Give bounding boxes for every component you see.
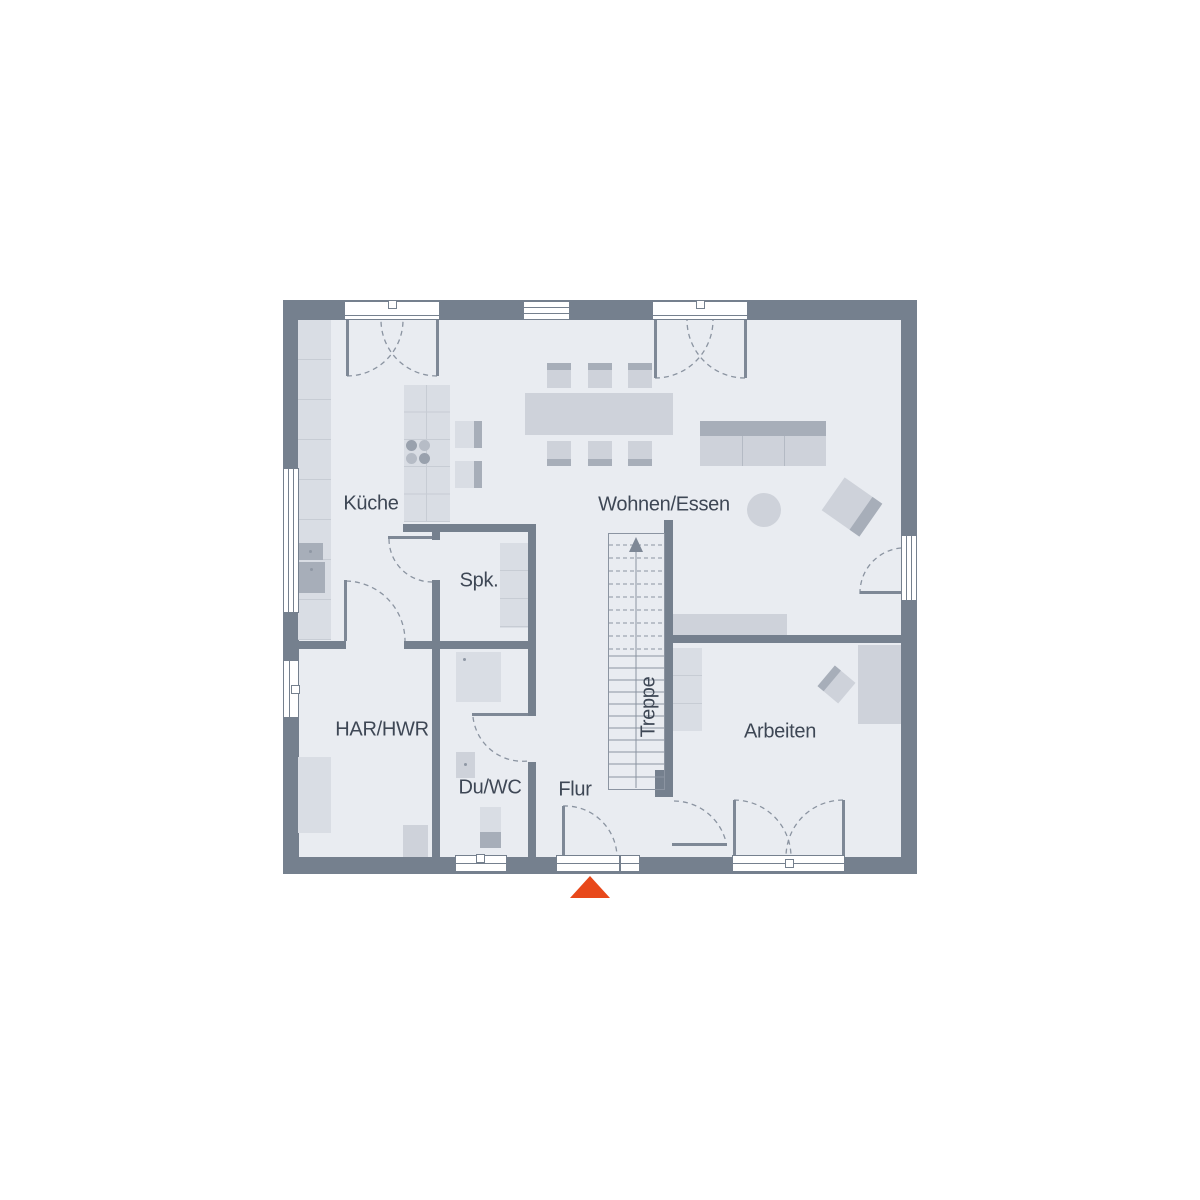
- door-leaf: [860, 591, 902, 594]
- island-sink: [474, 461, 482, 488]
- room-label-du-wc: Du/WC: [459, 777, 522, 800]
- wall-stairs-foot: [655, 770, 673, 797]
- dining-chair: [547, 363, 571, 388]
- window-utility-left: [283, 660, 299, 718]
- dining-chair: [628, 441, 652, 466]
- terrace-door-living-right: [901, 535, 917, 601]
- room-label-kueche: Küche: [343, 493, 398, 516]
- coffee-table: [747, 493, 781, 527]
- wall-duwc-flur-lower: [528, 762, 536, 857]
- stove-burner-icon: [406, 453, 417, 464]
- shower: [456, 652, 501, 702]
- room-label-flur: Flur: [558, 779, 591, 802]
- room-label-speisekammer: Spk.: [460, 570, 499, 593]
- french-door-living: [652, 301, 748, 320]
- room-label-arbeiten: Arbeiten: [744, 721, 816, 744]
- door-leaf: [472, 713, 528, 716]
- stove-burner-icon: [406, 440, 417, 451]
- door-leaf: [654, 320, 657, 378]
- window-handle-icon: [476, 854, 485, 863]
- sink: [456, 752, 475, 778]
- door-leaf: [842, 800, 845, 857]
- island-sink: [474, 421, 482, 448]
- door-leaf: [388, 536, 432, 539]
- wall-har-top-left: [283, 641, 346, 649]
- door-leaf: [346, 320, 349, 376]
- appliance-knob-icon: [309, 550, 312, 553]
- wall-pantry-top: [403, 524, 536, 532]
- floorplan-canvas: Küche Wohnen/Essen Spk. HAR/HWR Du/WC Fl…: [0, 0, 1200, 1200]
- pantry-shelf: [500, 543, 528, 628]
- entrance-marker: [570, 876, 610, 898]
- door-leaf: [344, 580, 347, 641]
- wall-har-duwc-divider: [432, 580, 440, 857]
- dining-chair: [547, 441, 571, 466]
- window-handle-icon: [291, 685, 300, 694]
- office-shelf: [673, 648, 702, 731]
- kitchen-appliance-dishwasher: [297, 543, 323, 560]
- desk: [858, 645, 901, 724]
- window-duwc-bottom: [455, 855, 507, 872]
- stove-burner-icon: [419, 440, 430, 451]
- shower-head-icon: [463, 658, 466, 661]
- utility-equipment: [298, 757, 331, 833]
- kitchen-appliance-oven: [297, 562, 325, 593]
- kitchen-island-block: [455, 421, 482, 448]
- door-handle-icon: [785, 859, 794, 868]
- appliance-knob-icon: [310, 568, 313, 571]
- room-label-har-hwr: HAR/HWR: [335, 719, 428, 742]
- dining-chair: [628, 363, 652, 388]
- dining-chair: [588, 363, 612, 388]
- sofa-seats: [700, 436, 826, 466]
- dining-table: [525, 393, 673, 435]
- faucet-icon: [464, 763, 467, 766]
- entrance-sidelight: [620, 855, 640, 872]
- stove-burner-icon: [419, 453, 430, 464]
- wall-stairs-right: [664, 520, 673, 797]
- wall-duwc-flur-upper: [528, 524, 536, 716]
- door-handle-icon: [388, 300, 397, 309]
- utility-equipment: [403, 825, 428, 857]
- toilet-tank: [480, 807, 501, 832]
- entrance-door-leaf: [562, 806, 565, 857]
- sofa: [700, 421, 826, 466]
- kitchen-island-block: [455, 461, 482, 488]
- french-door-kitchen: [344, 301, 440, 320]
- door-leaf: [672, 843, 727, 846]
- window-top: [523, 301, 570, 320]
- window-kitchen-left: [283, 468, 299, 613]
- entrance-door: [556, 855, 620, 872]
- wall-har-top-right: [404, 641, 536, 649]
- sideboard: [673, 614, 787, 635]
- door-leaf: [733, 800, 736, 857]
- door-leaf: [436, 320, 439, 376]
- dining-chair: [588, 441, 612, 466]
- room-label-wohnen-essen: Wohnen/Essen: [598, 494, 730, 517]
- wall-arbeiten-top: [664, 635, 901, 643]
- floorplan: Küche Wohnen/Essen Spk. HAR/HWR Du/WC Fl…: [283, 300, 917, 874]
- room-label-treppe: Treppe: [638, 677, 661, 738]
- sofa-backrest: [700, 421, 826, 436]
- door-leaf: [744, 320, 747, 378]
- wall-pantry-left-stub: [432, 524, 440, 540]
- terrace-door-office: [732, 855, 845, 872]
- door-handle-icon: [696, 300, 705, 309]
- toilet-bowl: [480, 832, 501, 848]
